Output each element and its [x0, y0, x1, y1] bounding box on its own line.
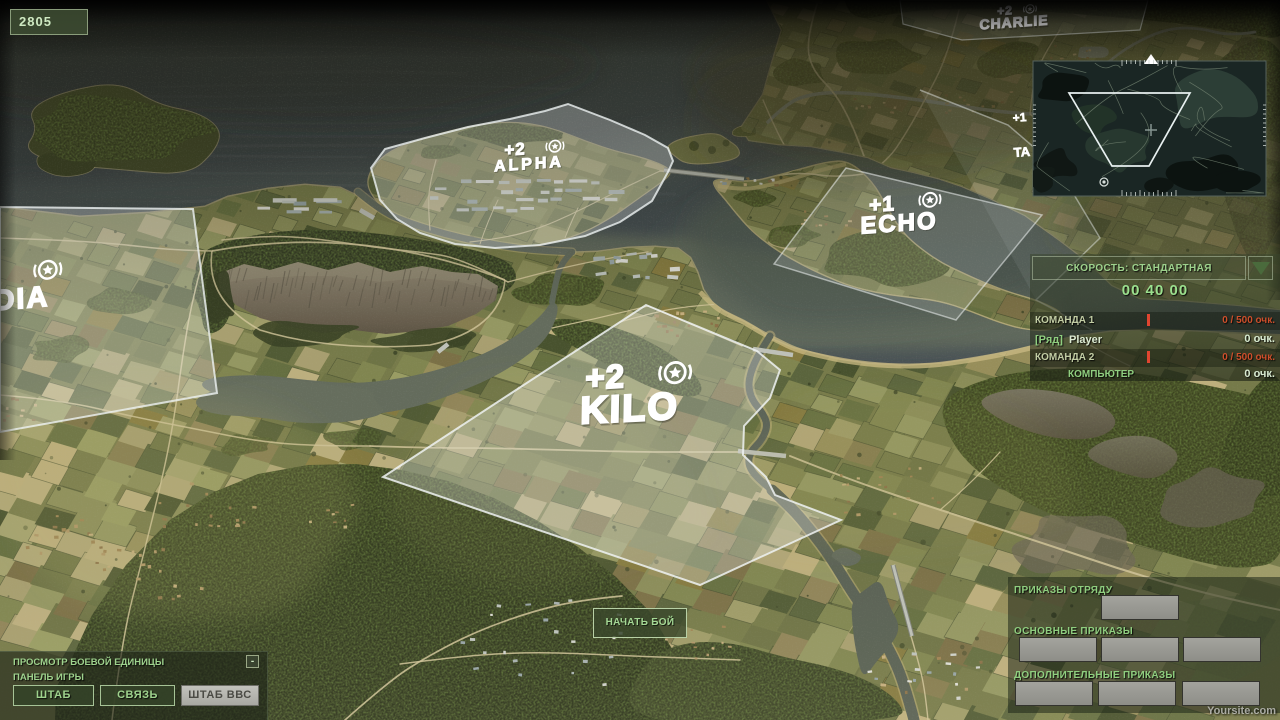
svg-text:TA: TA	[1013, 144, 1031, 160]
svg-text:ECHO: ECHO	[860, 207, 937, 239]
svg-text:+1: +1	[1012, 110, 1027, 125]
svg-text:KILO: KILO	[580, 385, 679, 432]
